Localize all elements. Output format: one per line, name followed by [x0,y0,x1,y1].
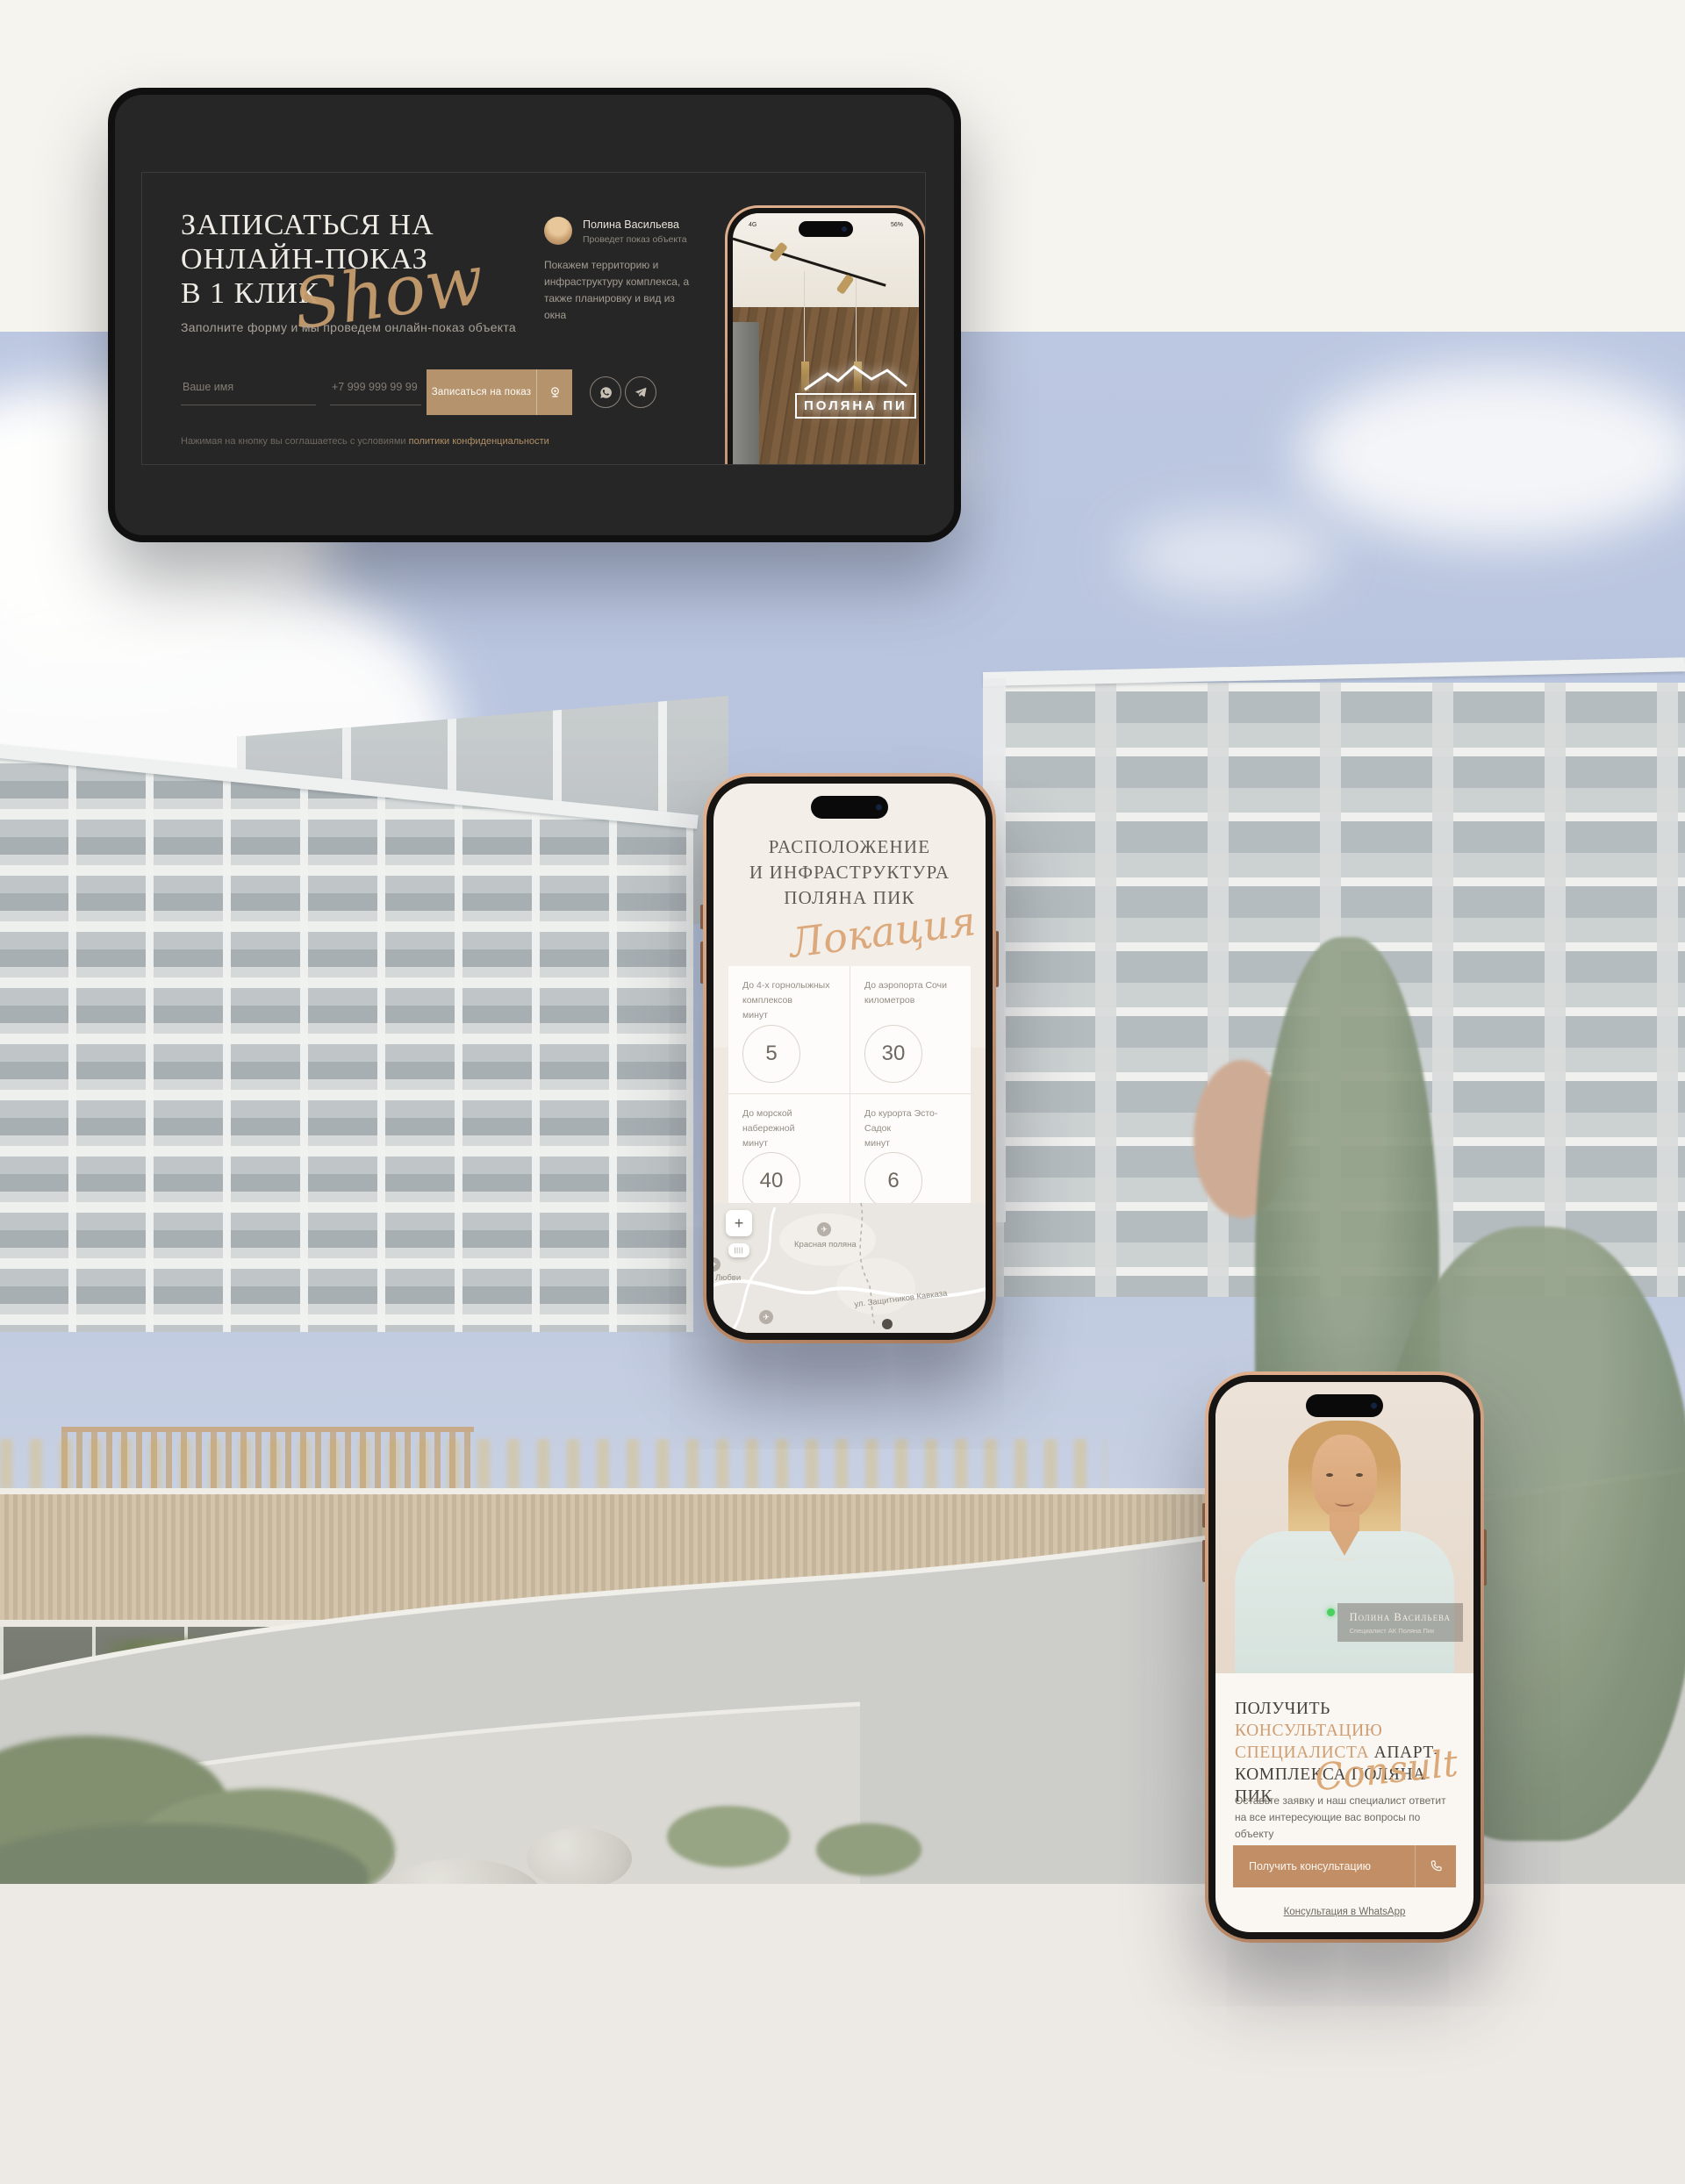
polyana-pik-sign: ПОЛЯНА ПИ [766,365,919,419]
specialist-photo: Полина Васильева Специалист АК Поляна Пи… [1215,1382,1473,1673]
webcam-icon [536,369,572,415]
location-title: РАСПОЛОЖЕНИЕ И ИНФРАСТРУКТУРА ПОЛЯНА ПИК [713,834,986,911]
map-roads [713,1203,986,1333]
map-zoom-in-button[interactable]: + [726,1210,752,1236]
stat-cell: До 4-х горнолыжных комплексов минут 5 [728,966,850,1093]
whatsapp-icon [599,386,613,399]
lamp-cord [804,271,805,365]
hero-card-inner-frame: ЗАПИСАТЬСЯ НА ОНЛАЙН-ПОКАЗ В 1 КЛИК Show… [141,172,926,465]
stat-unit: минут [742,1010,768,1020]
phone-bezel: Полина Васильева Специалист АК Поляна Пи… [1208,1375,1481,1939]
hero-phone-mockup: ПОЛЯНА ПИ 4G 56% [725,205,926,465]
stats-grid: До 4-х горнолыжных комплексов минут 5 До… [728,966,971,1221]
book-showing-button[interactable]: Записаться на показ [427,369,572,415]
dynamic-island [811,796,888,819]
disclaimer-text: Нажимая на кнопку вы соглашаетесь с усло… [181,436,409,447]
stat-cell: До морской набережной минут 40 [728,1093,850,1221]
agent-name: Полина Васильева [583,218,679,231]
status-bar: 4G 56% [733,222,919,228]
stat-unit: минут [864,1138,890,1149]
phone-frame: ПОЛЯНА ПИ 4G 56% [725,205,926,465]
necklace [1327,1545,1362,1560]
phone-icon [1415,1845,1456,1887]
office-photo: ПОЛЯНА ПИ [733,213,919,465]
location-phone-mockup: РАСПОЛОЖЕНИЕ И ИНФРАСТРУКТУРА ПОЛЯНА ПИК… [703,773,996,1343]
map-partial-label: Любви [715,1273,741,1283]
hero-title-line: ЗАПИСАТЬСЯ НА [181,208,434,242]
map[interactable]: ✈ Красная поляна ✈ Любви ✈ ул. Защитнико… [713,1203,986,1333]
sign-text: ПОЛЯНА ПИ [795,393,916,419]
camera-icon [1371,1403,1377,1409]
privacy-policy-link[interactable]: политики конфиденциальности [409,436,549,447]
whatsapp-consult-link[interactable]: Консультация в WhatsApp [1215,1907,1473,1917]
stat-value: 30 [864,1025,922,1083]
stat-cell: До аэропорта Сочи километров 30 [850,966,971,1093]
map-pin [882,1319,893,1329]
stat-cell: До курорта Эсто-Садок минут 6 [850,1093,971,1221]
eye [1356,1473,1363,1477]
airplane-icon: ✈ [817,1222,831,1236]
stat-label: До 4-х горнолыжных комплексов [742,980,829,1006]
phone-bezel: РАСПОЛОЖЕНИЕ И ИНФРАСТРУКТУРА ПОЛЯНА ПИК… [706,777,993,1340]
airplane-icon: ✈ [759,1310,773,1324]
telegram-button[interactable] [625,376,656,408]
stat-unit: километров [864,995,914,1006]
map-place-label: Красная поляна [794,1240,857,1250]
telegram-icon [635,386,647,398]
specialist-badge: Полина Васильева Специалист АК Поляна Пи… [1337,1603,1463,1642]
phone-screen: Полина Васильева Специалист АК Поляна Пи… [1215,1382,1473,1932]
office-left-wall [733,322,759,465]
agent-description: Покажем территорию и инфраструктуру комп… [544,257,693,324]
agent-role: Проведет показ объекта [583,234,687,245]
airplane-glyph: ✈ [713,1260,717,1270]
name-input[interactable] [181,369,316,405]
phone-bezel: ПОЛЯНА ПИ 4G 56% [728,208,924,465]
mountain-logo-icon [803,365,908,391]
dynamic-island [1306,1394,1383,1417]
phone-screen: ПОЛЯНА ПИ 4G 56% [733,213,919,465]
hero-card: ЗАПИСАТЬСЯ НА ОНЛАЙН-ПОКАЗ В 1 КЛИК Show… [108,88,961,542]
face [1312,1435,1377,1519]
design-showcase-page: ЗАПИСАТЬСЯ НА ОНЛАЙН-ПОКАЗ В 1 КЛИК Show… [0,0,1685,2184]
phone-frame: РАСПОЛОЖЕНИЕ И ИНФРАСТРУКТУРА ПОЛЯНА ПИК… [703,773,996,1343]
airplane-glyph: ✈ [763,1313,770,1322]
hero-subtitle: Заполните форму и мы проведем онлайн-пок… [181,320,516,334]
camera-icon [876,805,882,811]
lamp-cord [856,278,857,365]
badge-name: Полина Васильева [1350,1611,1451,1624]
location-title-line: РАСПОЛОЖЕНИЕ [713,834,986,860]
hero-form: Записаться на показ [181,369,760,422]
phone-input[interactable] [330,369,421,405]
avatar [544,217,572,245]
plus-icon: + [735,1214,744,1233]
stat-label: До курорта Эсто-Садок [864,1108,937,1134]
status-battery: 56% [891,222,903,228]
smile [1335,1498,1354,1507]
map-ruler-button[interactable]: |||| [728,1243,749,1257]
whatsapp-button[interactable] [590,376,621,408]
stat-unit: минут [742,1138,768,1149]
stat-label: До аэропорта Сочи [864,980,947,991]
phone-frame: Полина Васильева Специалист АК Поляна Пи… [1205,1371,1484,1943]
stat-label: До морской набережной [742,1108,794,1134]
stat-value: 5 [742,1025,800,1083]
phone-screen: РАСПОЛОЖЕНИЕ И ИНФРАСТРУКТУРА ПОЛЯНА ПИК… [713,784,986,1333]
badge-role: Специалист АК Поляна Пик [1350,1627,1451,1635]
location-title-line: И ИНФРАСТРУКТУРА [713,860,986,885]
stat-value: 40 [742,1152,800,1210]
consult-description: Оставьте заявку и наш специалист ответит… [1235,1793,1459,1843]
book-showing-label: Записаться на показ [427,369,536,415]
online-dot [1327,1608,1335,1616]
stat-value: 6 [864,1152,922,1210]
consult-title-dark: ПОЛУЧИТЬ [1235,1700,1330,1718]
get-consultation-label: Получить консультацию [1233,1845,1415,1887]
airplane-glyph: ✈ [821,1225,828,1235]
status-carrier: 4G [749,222,756,228]
get-consultation-button[interactable]: Получить консультацию [1233,1845,1456,1887]
disclaimer: Нажимая на кнопку вы соглашаетесь с усло… [181,436,549,447]
eye [1326,1473,1333,1477]
consult-phone-mockup: Полина Васильева Специалист АК Поляна Пи… [1205,1371,1484,1943]
